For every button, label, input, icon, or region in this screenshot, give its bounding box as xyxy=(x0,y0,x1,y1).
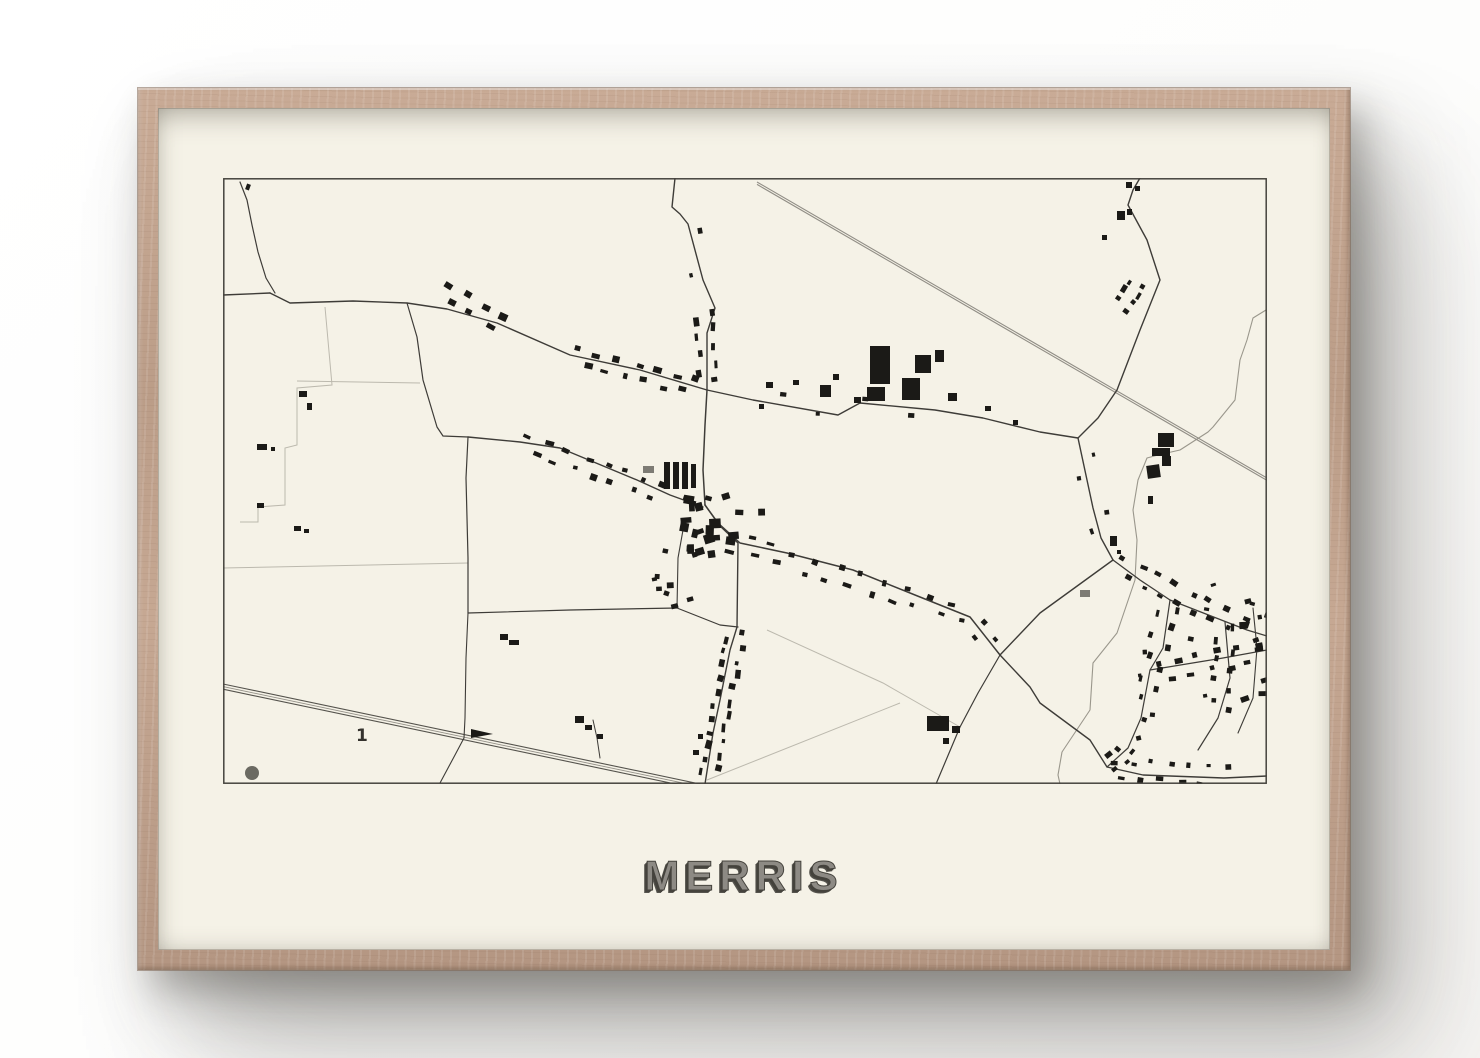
map-building xyxy=(307,403,312,410)
map-building xyxy=(1210,675,1216,681)
map-building xyxy=(662,548,668,554)
map-building xyxy=(1122,308,1129,315)
map-road xyxy=(1000,560,1113,655)
map-building xyxy=(709,716,715,723)
map-building xyxy=(1104,510,1109,515)
map-building xyxy=(652,366,662,374)
town-map: 1 xyxy=(223,178,1267,784)
map-building xyxy=(766,382,773,388)
map-building xyxy=(735,509,743,515)
map-building xyxy=(1244,621,1250,629)
map-road xyxy=(1107,600,1170,767)
map-building xyxy=(585,725,592,730)
map-label-1: 1 xyxy=(356,726,368,746)
field-boundary-line xyxy=(707,703,900,780)
map-building-gray xyxy=(643,466,654,473)
map-building xyxy=(1089,528,1094,535)
map-building xyxy=(1150,712,1155,717)
map-building xyxy=(509,640,519,645)
map-building xyxy=(706,731,713,736)
map-building xyxy=(739,629,745,635)
picture-frame: 1 MERRIS xyxy=(138,88,1350,970)
map-building xyxy=(1117,211,1125,220)
map-building xyxy=(816,412,820,416)
map-building xyxy=(694,333,698,341)
map-building xyxy=(698,768,702,776)
map-building xyxy=(728,683,736,690)
map-building xyxy=(1135,292,1142,300)
map-building xyxy=(820,385,831,397)
map-building xyxy=(682,462,688,489)
map-building xyxy=(1110,536,1117,546)
map-building xyxy=(1214,655,1219,662)
map-building xyxy=(1136,735,1142,741)
field-boundary-line xyxy=(297,381,420,383)
map-building xyxy=(667,582,674,588)
map-building xyxy=(1156,666,1163,673)
map-building xyxy=(1211,698,1216,703)
map-building xyxy=(698,734,703,739)
map-building xyxy=(735,670,741,679)
map-building xyxy=(586,457,594,463)
map-building xyxy=(715,764,723,772)
map-building xyxy=(1191,592,1198,599)
map-building xyxy=(839,564,846,571)
map-building xyxy=(1126,182,1132,188)
map-building xyxy=(780,392,787,397)
map-building xyxy=(673,462,679,489)
field-boundary-line xyxy=(767,630,960,727)
map-building xyxy=(1127,280,1132,286)
map-building xyxy=(915,355,931,373)
map-building xyxy=(612,355,620,363)
map-building xyxy=(985,406,991,411)
map-building xyxy=(857,570,863,576)
poster-paper: 1 MERRIS xyxy=(158,108,1330,950)
map-building xyxy=(689,273,693,278)
map-building xyxy=(656,587,662,592)
map-building xyxy=(1231,624,1235,632)
map-building xyxy=(1148,496,1153,504)
poster-title: MERRIS xyxy=(158,852,1330,900)
map-building xyxy=(952,726,960,733)
map-building xyxy=(867,387,885,401)
map-building xyxy=(257,444,267,450)
map-road xyxy=(1000,655,1267,778)
map-building xyxy=(1135,186,1140,191)
map-building xyxy=(707,550,715,558)
map-building xyxy=(500,634,508,640)
map-building xyxy=(497,312,508,322)
map-building xyxy=(1214,637,1218,645)
map-building xyxy=(691,464,696,488)
map-building xyxy=(1111,766,1118,773)
map-building xyxy=(1125,574,1133,582)
map-building xyxy=(1138,673,1142,677)
map-building xyxy=(1104,750,1113,759)
map-road xyxy=(703,390,707,505)
map-building xyxy=(740,645,747,652)
map-building xyxy=(561,447,570,455)
map-building xyxy=(870,346,890,384)
map-building xyxy=(1252,637,1259,643)
map-building xyxy=(686,545,692,551)
map-building xyxy=(1142,586,1147,591)
map-building xyxy=(575,716,584,723)
map-building xyxy=(724,549,734,555)
map-building xyxy=(702,757,707,763)
map-building xyxy=(705,495,713,501)
map-building xyxy=(1120,284,1128,293)
map-building xyxy=(1156,661,1162,667)
map-building xyxy=(660,386,668,392)
map-road xyxy=(407,303,468,437)
map-building xyxy=(766,542,774,547)
map-building xyxy=(833,374,839,380)
map-road xyxy=(466,437,468,613)
map-building xyxy=(245,183,251,190)
map-building xyxy=(1158,433,1174,447)
map-building xyxy=(888,599,897,606)
map-building xyxy=(679,522,689,532)
map-building xyxy=(1154,570,1162,577)
map-building xyxy=(759,404,764,409)
map-building xyxy=(728,531,739,539)
map-building xyxy=(1156,776,1164,781)
map-building xyxy=(1124,759,1130,765)
map-building xyxy=(948,393,957,401)
map-building xyxy=(721,723,725,732)
map-building xyxy=(862,397,868,402)
map-building xyxy=(271,447,275,451)
map-building xyxy=(299,391,307,397)
map-building xyxy=(1118,776,1125,780)
map-building xyxy=(1147,631,1153,638)
map-building xyxy=(1188,636,1194,642)
map-building xyxy=(704,740,712,750)
map-building xyxy=(992,636,998,642)
map-building xyxy=(908,413,915,418)
pond-dot xyxy=(245,766,259,780)
map-building xyxy=(943,738,949,744)
map-building xyxy=(1139,283,1145,289)
map-building xyxy=(788,552,795,558)
map-building xyxy=(1077,476,1082,481)
map-building xyxy=(304,529,309,533)
map-building xyxy=(697,227,703,234)
map-building xyxy=(1092,452,1096,457)
map-building xyxy=(869,591,876,599)
map-building xyxy=(749,535,757,540)
map-building xyxy=(1243,660,1250,665)
wall-background: 1 MERRIS xyxy=(0,0,1480,1058)
map-building xyxy=(1013,420,1018,425)
map-building xyxy=(717,753,722,761)
railway-line-ne xyxy=(757,182,1267,478)
map-building xyxy=(680,517,691,523)
map-building xyxy=(1146,651,1153,659)
map-building xyxy=(1231,649,1235,656)
map-building xyxy=(972,634,979,641)
map-building xyxy=(718,659,725,668)
map-building xyxy=(1209,665,1214,671)
map-building xyxy=(710,703,715,709)
map-building xyxy=(447,298,457,307)
map-building xyxy=(698,350,703,357)
map-building xyxy=(1175,607,1180,615)
map-building xyxy=(443,281,453,290)
map-building xyxy=(1227,668,1233,674)
map-building xyxy=(935,350,944,362)
map-road xyxy=(468,608,738,627)
map-building xyxy=(548,460,556,466)
map-building xyxy=(257,503,264,508)
map-building xyxy=(1141,717,1147,723)
map-building xyxy=(711,377,718,383)
map-building xyxy=(1174,657,1183,664)
map-building xyxy=(623,373,628,380)
map-road xyxy=(705,505,1000,655)
map-building xyxy=(1140,565,1148,571)
map-building xyxy=(1204,607,1210,611)
map-building xyxy=(727,699,732,708)
map-building xyxy=(655,574,660,579)
map-building xyxy=(1131,762,1137,766)
map-building xyxy=(1118,555,1125,562)
map-building xyxy=(463,290,472,299)
map-road xyxy=(240,182,275,293)
map-road xyxy=(1078,438,1113,560)
map-building xyxy=(678,386,687,393)
map-building xyxy=(1111,761,1118,766)
stream-line xyxy=(1058,310,1266,784)
map-building xyxy=(1207,764,1211,767)
map-building xyxy=(854,397,861,403)
map-building xyxy=(695,528,704,535)
map-building xyxy=(584,362,593,370)
map-building xyxy=(1226,688,1231,693)
map-road xyxy=(677,530,683,608)
map-building xyxy=(1137,777,1144,783)
map-building xyxy=(1249,601,1255,606)
map-building xyxy=(1255,647,1264,652)
map-building xyxy=(1186,762,1191,768)
map-building xyxy=(589,473,598,482)
map-building xyxy=(758,509,765,516)
map-building xyxy=(294,526,301,531)
map-building xyxy=(605,478,613,485)
map-building xyxy=(882,580,887,587)
map-building xyxy=(1240,695,1250,703)
field-boundary-line xyxy=(240,307,332,522)
map-building xyxy=(902,378,920,400)
map-building xyxy=(751,553,760,558)
map-building xyxy=(927,716,949,731)
map-building xyxy=(600,369,608,374)
map-building xyxy=(686,596,693,602)
map-building xyxy=(622,467,628,472)
map-building xyxy=(793,380,799,385)
map-building xyxy=(693,750,699,755)
map-building xyxy=(735,661,739,666)
map-building xyxy=(721,492,730,500)
map-building xyxy=(663,590,670,596)
map-building-gray xyxy=(1080,590,1090,597)
map-building xyxy=(842,582,852,589)
map-building xyxy=(711,343,715,350)
map-building xyxy=(772,559,781,565)
map-building xyxy=(1155,610,1159,617)
map-building xyxy=(1102,235,1107,240)
map-building xyxy=(1225,764,1231,770)
map-building xyxy=(802,572,808,577)
map-building xyxy=(1169,762,1175,767)
map-building xyxy=(709,309,715,316)
map-building xyxy=(1152,448,1170,456)
map-building xyxy=(597,734,603,739)
map-building xyxy=(1210,583,1216,588)
map-road xyxy=(672,178,715,390)
railway-marker xyxy=(471,729,493,738)
map-road xyxy=(223,293,270,295)
map-building xyxy=(1114,746,1121,753)
map-building xyxy=(486,322,496,331)
map-building xyxy=(1172,598,1181,606)
map-building xyxy=(1187,672,1195,677)
map-building xyxy=(1222,605,1231,613)
map-building xyxy=(721,647,726,653)
map-building xyxy=(1169,578,1179,587)
map-building xyxy=(1203,694,1208,698)
map-road xyxy=(707,390,1078,438)
map-building xyxy=(1153,686,1159,693)
map-border xyxy=(224,179,1266,783)
map-building xyxy=(1165,644,1172,651)
map-building xyxy=(1225,707,1232,714)
map-building xyxy=(714,360,717,368)
map-building xyxy=(1115,295,1122,301)
map-building xyxy=(1117,550,1121,554)
map-building xyxy=(1257,615,1262,620)
field-boundary-line xyxy=(223,563,468,568)
map-building xyxy=(1169,676,1177,681)
map-building xyxy=(636,363,644,369)
map-building xyxy=(722,739,726,743)
map-building xyxy=(631,486,637,492)
map-building xyxy=(574,345,581,351)
map-building xyxy=(1130,299,1136,305)
map-building xyxy=(1203,595,1211,603)
map-building xyxy=(533,451,543,458)
map-road xyxy=(440,613,468,783)
map-building xyxy=(573,465,578,470)
map-building xyxy=(591,353,600,360)
map-building xyxy=(1213,647,1221,654)
map-building xyxy=(938,611,945,616)
map-building xyxy=(726,711,732,720)
map-building xyxy=(1148,759,1153,764)
map-building xyxy=(1162,456,1171,466)
map-building xyxy=(1127,209,1132,215)
map-building xyxy=(981,619,988,626)
map-building xyxy=(820,577,827,583)
railway-line-sw xyxy=(223,684,700,784)
map-building xyxy=(1139,694,1144,700)
map-building xyxy=(1168,623,1176,632)
map-building xyxy=(723,636,729,644)
map-building xyxy=(959,618,965,623)
map-building xyxy=(689,503,695,511)
map-building xyxy=(909,602,914,607)
map-building xyxy=(693,317,700,327)
map-building xyxy=(947,602,955,607)
map-building xyxy=(1192,652,1198,658)
map-building xyxy=(673,374,682,380)
map-building xyxy=(646,495,653,501)
map-building xyxy=(1146,464,1161,479)
map-building xyxy=(1129,748,1135,755)
map-building xyxy=(523,434,531,440)
map-building xyxy=(639,376,647,382)
map-building xyxy=(1142,650,1147,655)
map-building xyxy=(711,322,716,331)
map-building xyxy=(481,303,491,312)
railway-line-ne xyxy=(757,184,1267,480)
